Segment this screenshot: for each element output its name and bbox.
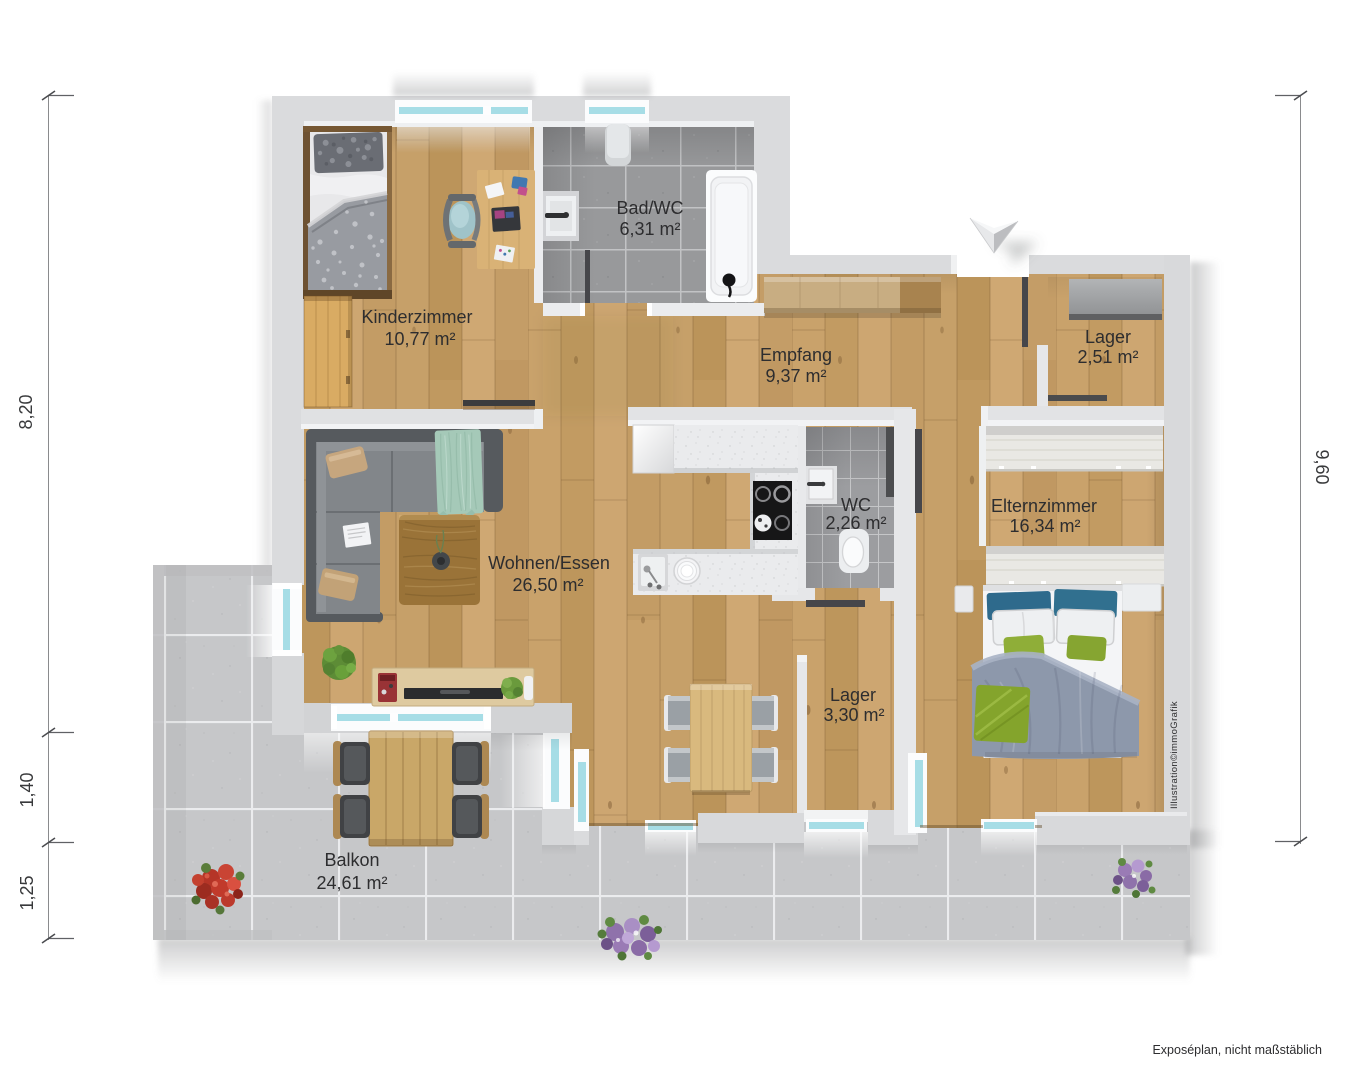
svg-text:1,25: 1,25 [17, 875, 37, 910]
svg-text:16,34 m²: 16,34 m² [1009, 516, 1080, 536]
svg-text:24,61 m²: 24,61 m² [316, 873, 387, 893]
svg-text:WC: WC [841, 495, 871, 515]
svg-text:6,31 m²: 6,31 m² [619, 219, 680, 239]
svg-text:26,50 m²: 26,50 m² [512, 575, 583, 595]
svg-text:Bad/WC: Bad/WC [616, 198, 683, 218]
svg-text:2,51 m²: 2,51 m² [1077, 347, 1138, 367]
svg-text:Elternzimmer: Elternzimmer [991, 496, 1097, 516]
svg-text:3,30 m²: 3,30 m² [823, 705, 884, 725]
svg-text:1,40: 1,40 [17, 772, 37, 807]
svg-text:8,20: 8,20 [16, 394, 36, 429]
svg-text:Wohnen/Essen: Wohnen/Essen [488, 553, 610, 573]
svg-text:Lager: Lager [1085, 327, 1131, 347]
svg-text:Lager: Lager [830, 685, 876, 705]
svg-text:9,60: 9,60 [1312, 449, 1332, 484]
svg-text:Empfang: Empfang [760, 345, 832, 365]
svg-text:Illustration©immoGrafik: Illustration©immoGrafik [1169, 701, 1180, 809]
svg-text:Balkon: Balkon [324, 850, 379, 870]
svg-text:Exposéplan, nicht maßstäblich: Exposéplan, nicht maßstäblich [1152, 1043, 1322, 1057]
svg-text:Kinderzimmer: Kinderzimmer [361, 307, 472, 327]
svg-text:10,77 m²: 10,77 m² [384, 329, 455, 349]
svg-text:2,26 m²: 2,26 m² [825, 513, 886, 533]
svg-text:9,37 m²: 9,37 m² [765, 366, 826, 386]
